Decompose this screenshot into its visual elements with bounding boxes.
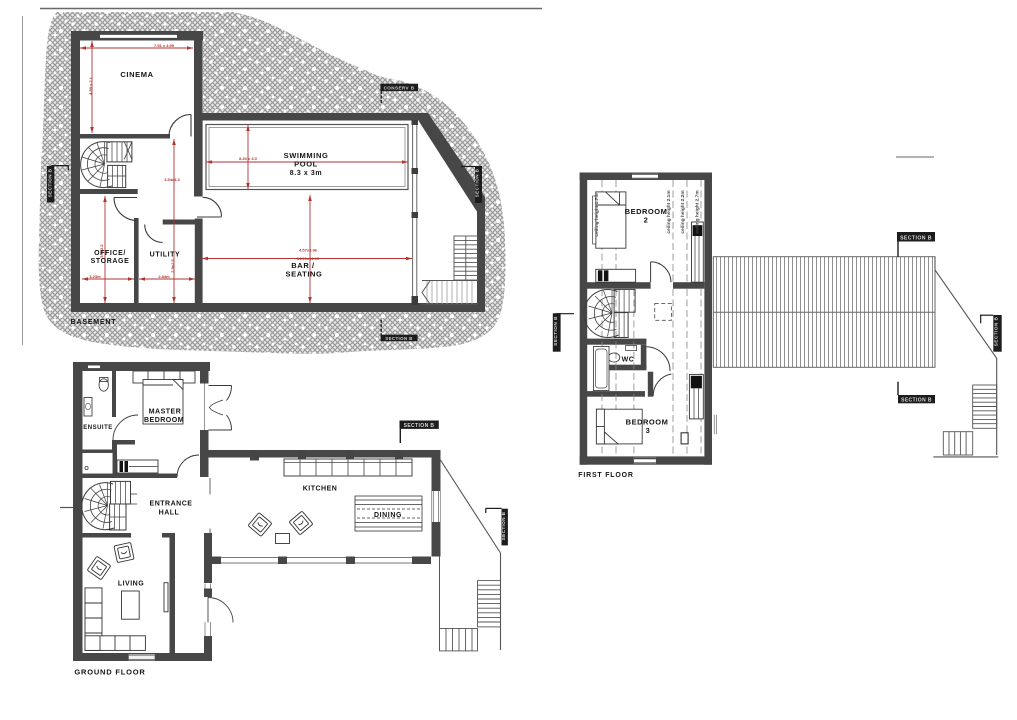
svg-text:GROUND FLOOR: GROUND FLOOR bbox=[74, 668, 145, 677]
svg-text:SECTION B: SECTION B bbox=[501, 511, 506, 540]
svg-text:2.84m: 2.84m bbox=[158, 274, 170, 279]
svg-text:HALL: HALL bbox=[159, 510, 180, 517]
svg-text:ceiling height 2.7m: ceiling height 2.7m bbox=[695, 190, 701, 233]
svg-text:MASTER: MASTER bbox=[149, 409, 182, 416]
svg-text:SEATING: SEATING bbox=[286, 270, 323, 279]
svg-text:4.99 x 2.1: 4.99 x 2.1 bbox=[88, 76, 93, 95]
svg-text:SECTION B: SECTION B bbox=[404, 423, 435, 429]
svg-text:KITCHEN: KITCHEN bbox=[303, 486, 338, 493]
svg-text:SECTION B: SECTION B bbox=[385, 336, 413, 341]
svg-text:SECTION B: SECTION B bbox=[994, 317, 1000, 347]
svg-text:ceiling height 1.7m: ceiling height 1.7m bbox=[594, 193, 600, 236]
svg-text:WC: WC bbox=[622, 357, 635, 364]
svg-text:4.57x3.96: 4.57x3.96 bbox=[299, 248, 318, 253]
svg-text:7.51 x 4.99: 7.51 x 4.99 bbox=[154, 43, 175, 48]
svg-text:SECTION B: SECTION B bbox=[900, 235, 932, 241]
svg-text:2: 2 bbox=[644, 216, 649, 225]
svg-text:8.3 x 3m: 8.3 x 3m bbox=[290, 170, 322, 177]
svg-text:BASEMENT: BASEMENT bbox=[71, 319, 117, 326]
svg-text:UTILITY: UTILITY bbox=[150, 252, 181, 259]
svg-text:SECTION B: SECTION B bbox=[553, 316, 559, 346]
svg-text:FIRST FLOOR: FIRST FLOOR bbox=[578, 472, 633, 479]
svg-text:CONSERV B: CONSERV B bbox=[384, 85, 415, 90]
svg-text:3: 3 bbox=[646, 426, 651, 435]
svg-text:CINEMA: CINEMA bbox=[120, 70, 153, 79]
svg-text:8.30 x 3.0: 8.30 x 3.0 bbox=[239, 156, 258, 161]
svg-text:DINING: DINING bbox=[374, 512, 402, 519]
svg-text:2.9x2.5: 2.9x2.5 bbox=[170, 259, 175, 273]
svg-text:ENTRANCE: ENTRANCE bbox=[150, 501, 193, 508]
svg-text:3.23m: 3.23m bbox=[89, 274, 101, 279]
svg-text:3.54x4.3: 3.54x4.3 bbox=[164, 177, 180, 182]
svg-text:SECTION B: SECTION B bbox=[48, 168, 53, 197]
svg-text:OFFICE/: OFFICE/ bbox=[94, 250, 126, 257]
svg-text:SECTION B: SECTION B bbox=[901, 398, 932, 404]
svg-text:BEDROOM: BEDROOM bbox=[144, 417, 184, 424]
svg-text:ceiling height 2.2m: ceiling height 2.2m bbox=[680, 190, 686, 233]
svg-text:ENSUITE: ENSUITE bbox=[83, 425, 113, 431]
svg-text:LIVING: LIVING bbox=[118, 581, 144, 588]
svg-text:STORAGE: STORAGE bbox=[91, 258, 130, 265]
svg-text:SECTION B: SECTION B bbox=[475, 168, 480, 197]
svg-text:POOL: POOL bbox=[294, 160, 318, 169]
